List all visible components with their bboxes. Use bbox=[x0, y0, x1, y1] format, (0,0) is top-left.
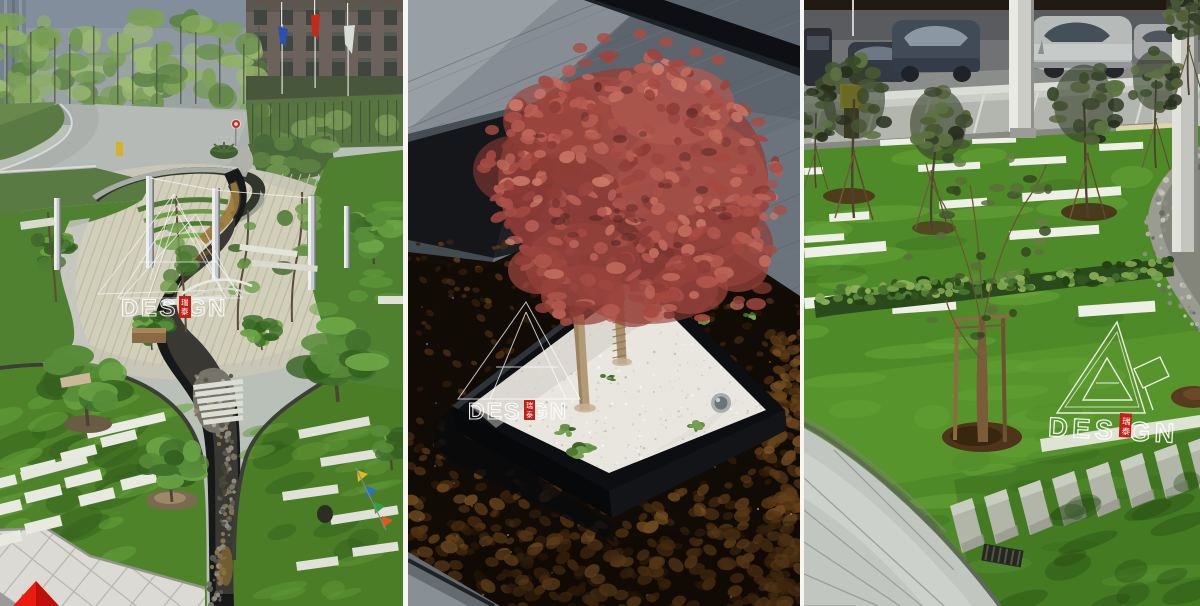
svg-text:泰: 泰 bbox=[1121, 426, 1131, 436]
svg-text:DES GN: DES GN bbox=[121, 295, 228, 322]
svg-text:泰: 泰 bbox=[181, 306, 189, 316]
svg-text:泰: 泰 bbox=[526, 410, 533, 419]
svg-text:瑞: 瑞 bbox=[181, 297, 189, 307]
svg-text:DES GN: DES GN bbox=[468, 398, 568, 424]
svg-text:瑞: 瑞 bbox=[526, 401, 533, 410]
svg-text:瑞: 瑞 bbox=[1122, 416, 1132, 426]
